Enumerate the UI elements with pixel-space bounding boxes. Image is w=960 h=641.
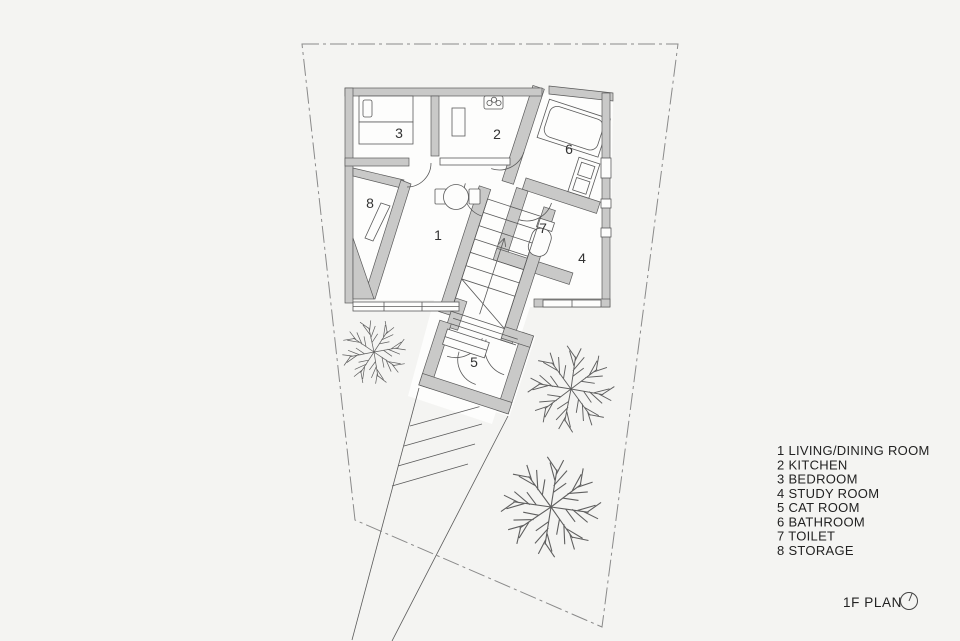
legend-row: 4 STUDY ROOM — [777, 486, 879, 501]
legend-row: 1 LIVING/DINING ROOM — [777, 443, 930, 458]
room-number-kitchen: 2 — [493, 126, 501, 142]
bed — [359, 96, 413, 144]
north-icon — [901, 593, 918, 610]
legend-row: 7 TOILET — [777, 529, 835, 544]
plan-title: 1F PLAN — [843, 595, 902, 610]
room-number-cat-room: 5 — [470, 354, 478, 370]
room-number-living: 1 — [434, 227, 442, 243]
room-number-toilet: 7 — [539, 220, 547, 236]
tree-icon — [517, 335, 625, 443]
floor-plan-page: 1 2 3 4 5 6 7 8 1 LIVING/DINING ROOM 2 K… — [0, 0, 960, 641]
tree-icon — [342, 320, 406, 384]
room-number-bedroom: 3 — [395, 125, 403, 141]
room-number-study: 4 — [578, 250, 586, 266]
tree-icon — [486, 442, 616, 571]
legend-row: 3 BEDROOM — [777, 472, 858, 487]
legend-row: 8 STORAGE — [777, 543, 854, 558]
outdoor-steps — [352, 388, 508, 641]
legend: 1 LIVING/DINING ROOM 2 KITCHEN 3 BEDROOM… — [777, 443, 930, 558]
floor-plan-drawing: 1 2 3 4 5 6 7 8 1 LIVING/DINING ROOM 2 K… — [0, 0, 960, 641]
legend-row: 6 BATHROOM — [777, 514, 865, 529]
stove-icon — [484, 96, 503, 109]
room-number-storage: 8 — [366, 195, 374, 211]
legend-row: 2 KITCHEN — [777, 457, 848, 472]
legend-row: 5 CAT ROOM — [777, 500, 860, 515]
room-number-bathroom: 6 — [565, 141, 573, 157]
